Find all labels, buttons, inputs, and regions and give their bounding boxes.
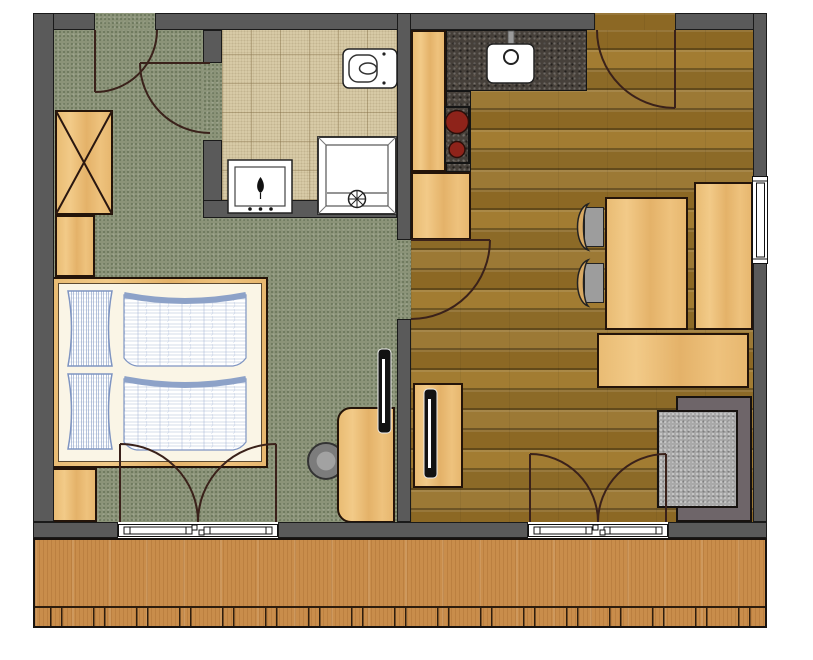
kitchen-counter	[446, 30, 587, 91]
wardrobe	[55, 110, 113, 215]
balcony-railing	[35, 606, 765, 626]
wall-bathroom-west-stub	[203, 30, 222, 63]
wall-divider-lower	[397, 319, 411, 522]
sofa-seat	[657, 410, 738, 508]
desk	[337, 407, 395, 523]
wall-bathroom-south	[203, 200, 397, 218]
kitchen-cabinet-lower	[411, 172, 471, 240]
wall-bottom-middle	[278, 522, 528, 538]
sideboard-bench	[597, 333, 749, 388]
wall-right	[753, 13, 767, 522]
east-window	[752, 176, 768, 264]
chair-seat-1	[584, 207, 604, 247]
tv-sideboard	[413, 383, 463, 488]
wall-bottom-left	[33, 522, 118, 538]
floor-plan	[0, 0, 813, 660]
main-entrance-threshold	[595, 13, 675, 30]
balcony-floor	[33, 538, 767, 628]
wall-left	[33, 13, 54, 522]
chair-seat-2	[584, 263, 604, 303]
wall-divider-upper	[397, 13, 411, 240]
bedroom-entrance-threshold	[95, 13, 155, 30]
bedroom-balcony-door-sill	[118, 524, 278, 537]
bathroom-floor	[222, 30, 397, 200]
bathroom-doorway-threshold	[203, 63, 222, 140]
wall-top-middle	[155, 13, 595, 30]
stove-top	[444, 106, 470, 164]
cabinet	[55, 215, 95, 277]
dining-table	[605, 197, 688, 330]
nightstand	[52, 468, 97, 522]
bed-sheet	[58, 283, 262, 462]
kitchen-cabinet-column	[411, 30, 446, 172]
connecting-doorway-threshold	[397, 240, 411, 319]
corner-bench	[694, 182, 753, 330]
wall-bottom-right	[668, 522, 767, 538]
living-balcony-door-sill	[528, 524, 668, 537]
